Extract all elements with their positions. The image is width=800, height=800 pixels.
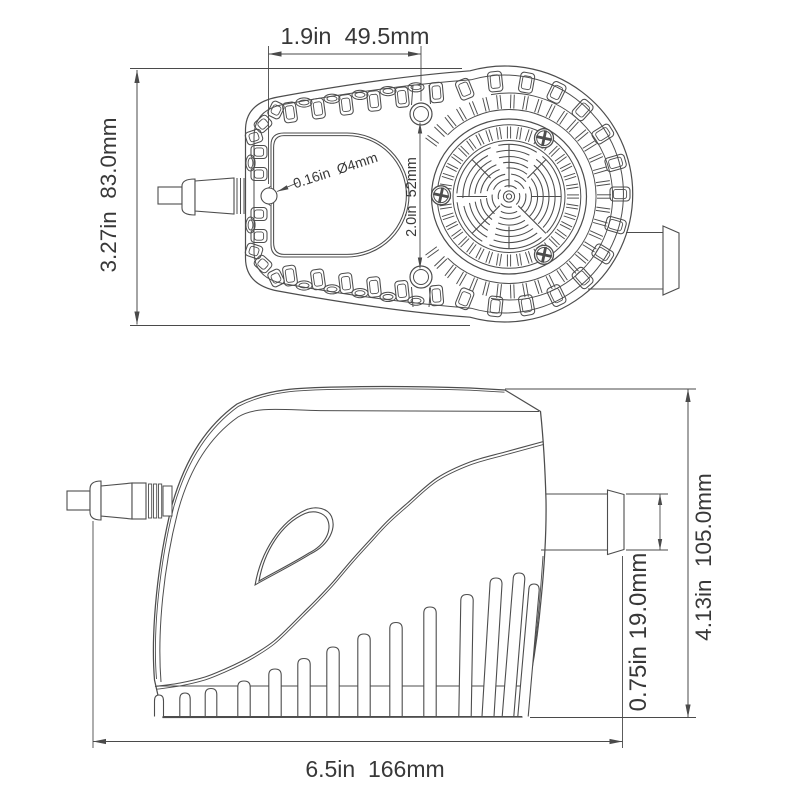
svg-text:4.13in 105.0mm: 4.13in 105.0mm (691, 473, 716, 641)
svg-text:6.5in 166mm: 6.5in 166mm (305, 756, 444, 782)
svg-text:2.0in 52mm: 2.0in 52mm (404, 157, 420, 237)
svg-text:3.27in 83.0mm: 3.27in 83.0mm (96, 117, 121, 272)
svg-text:1.9in 49.5mm: 1.9in 49.5mm (281, 23, 430, 49)
svg-text:0.75in 19.0mm: 0.75in 19.0mm (625, 553, 652, 712)
